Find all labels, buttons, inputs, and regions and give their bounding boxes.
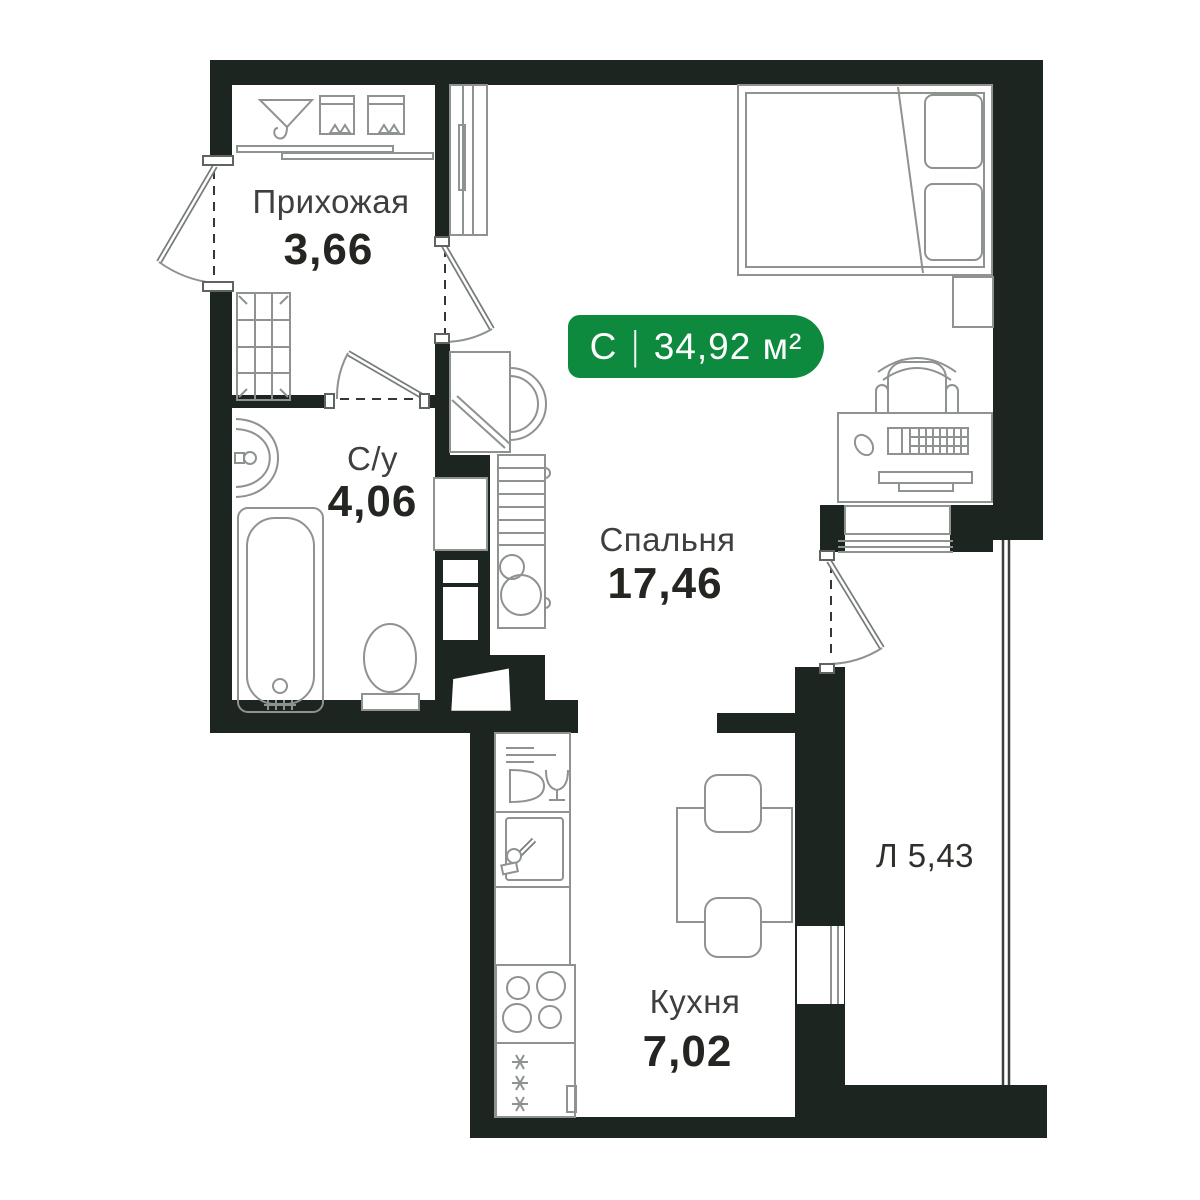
bed-icon (738, 85, 992, 275)
bathtub-icon (238, 508, 323, 712)
nightstand-icon (953, 277, 993, 327)
room-label-bathroom: С/у (300, 441, 445, 477)
hanger-icon (260, 100, 312, 139)
water-heater-icon (498, 545, 550, 628)
room-label-loggia: Л 5,43 (845, 838, 1005, 874)
washing-machine-icon (450, 352, 546, 452)
area-badge: С | 34,92 м² (568, 315, 824, 378)
room-area-bedroom: 17,46 (545, 560, 785, 608)
total-area: 34,92 м² (654, 326, 803, 368)
storage-box-icon (320, 96, 354, 134)
sliding-door-track (237, 146, 433, 159)
toilet-icon (362, 624, 419, 710)
stove-icon (496, 965, 575, 1043)
wardrobe-icon (450, 85, 487, 235)
storage-box-icon (368, 96, 404, 134)
shoe-cabinet-icon (237, 293, 290, 400)
window-icon (831, 926, 838, 1004)
vent-hatch-icon (450, 667, 512, 712)
floor-plan: Прихожая 3,66 С/у 4,06 Спальня 17,46 Кух… (0, 0, 1200, 1200)
shelving-icon (498, 455, 550, 545)
fridge-icon (496, 1043, 576, 1117)
dish-rack-icon (506, 748, 568, 802)
room-label-bedroom: Спальня (545, 522, 790, 558)
room-label-kitchen: Кухня (585, 984, 805, 1020)
room-area-kitchen: 7,02 (585, 1028, 790, 1076)
balcony-door-icon (820, 551, 882, 673)
loggia-glazing (1003, 540, 1009, 1085)
kitchen-sink-icon (501, 818, 563, 880)
room-label-hallway: Прихожая (211, 184, 451, 220)
chair-icon (705, 898, 761, 957)
room-area-bathroom: 4,06 (300, 478, 445, 526)
badge-separator: | (632, 324, 638, 369)
apartment-type: С (590, 326, 618, 368)
window-icon (838, 506, 953, 552)
room-area-hallway: 3,66 (211, 226, 446, 274)
interior-door-icon (325, 353, 429, 408)
chair-icon (705, 775, 761, 832)
desk-icon (838, 413, 992, 502)
bath-sink-icon (235, 419, 278, 497)
